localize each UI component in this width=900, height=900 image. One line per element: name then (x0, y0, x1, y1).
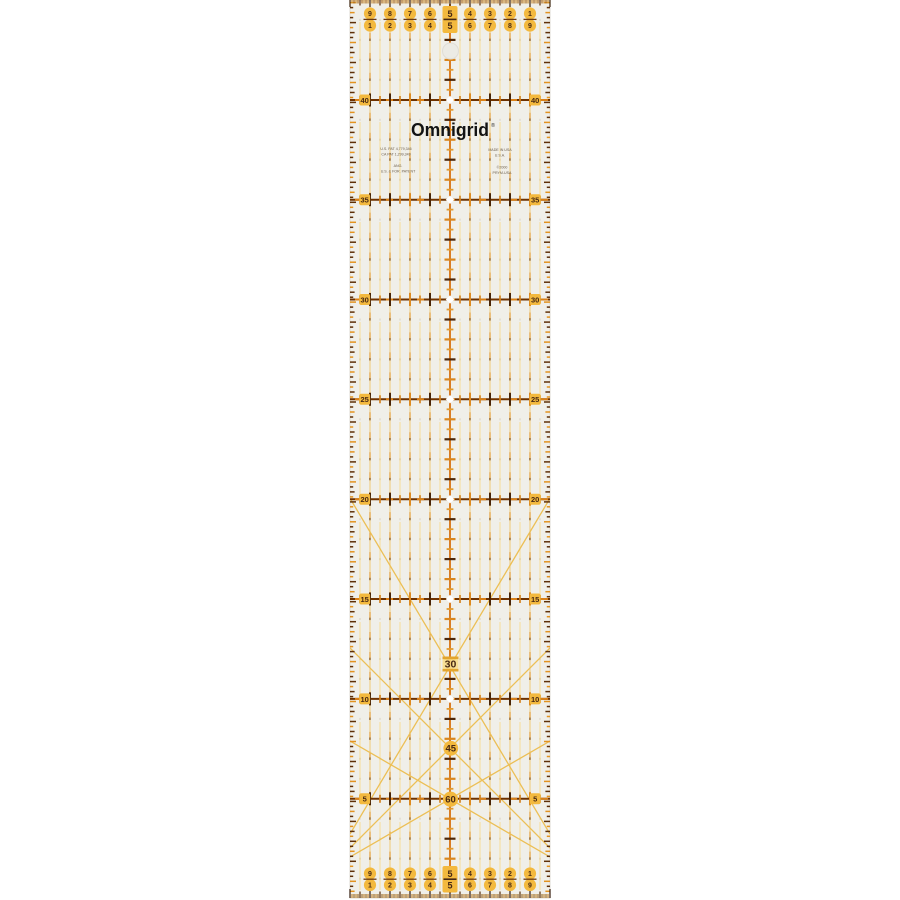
svg-text:7: 7 (488, 883, 492, 890)
svg-text:1: 1 (528, 871, 532, 878)
svg-text:15: 15 (531, 595, 539, 604)
svg-text:20: 20 (361, 495, 369, 504)
svg-text:1: 1 (368, 23, 372, 30)
svg-text:®: ® (491, 122, 495, 129)
svg-text:4: 4 (468, 11, 472, 18)
svg-text:2: 2 (388, 883, 392, 890)
svg-text:8: 8 (508, 883, 512, 890)
svg-text:6: 6 (468, 23, 472, 30)
svg-text:5: 5 (447, 21, 452, 31)
svg-text:2: 2 (508, 871, 512, 878)
svg-text:5: 5 (447, 869, 452, 879)
svg-text:4: 4 (428, 883, 432, 890)
svg-text:3: 3 (408, 883, 412, 890)
svg-text:U.S. PAT 4,779,346: U.S. PAT 4,779,346 (380, 147, 411, 151)
svg-text:3: 3 (488, 11, 492, 18)
svg-text:2: 2 (388, 23, 392, 30)
svg-text:7: 7 (408, 871, 412, 878)
svg-text:40: 40 (361, 96, 369, 105)
svg-text:8: 8 (508, 23, 512, 30)
svg-text:2: 2 (508, 11, 512, 18)
svg-text:60: 60 (445, 795, 456, 806)
svg-text:Omnigrid: Omnigrid (411, 120, 489, 140)
svg-text:35: 35 (531, 196, 539, 205)
svg-text:30: 30 (445, 658, 457, 670)
svg-text:5: 5 (533, 795, 537, 804)
svg-text:20: 20 (531, 495, 539, 504)
svg-text:5: 5 (363, 795, 367, 804)
svg-text:9: 9 (528, 23, 532, 30)
svg-text:6: 6 (428, 11, 432, 18)
svg-text:1: 1 (368, 883, 372, 890)
svg-text:8: 8 (388, 871, 392, 878)
svg-text:4: 4 (428, 23, 432, 30)
svg-text:30: 30 (531, 295, 539, 304)
svg-text:6: 6 (468, 883, 472, 890)
svg-text:5: 5 (447, 880, 452, 890)
svg-text:6: 6 (428, 871, 432, 878)
svg-text:3: 3 (488, 871, 492, 878)
svg-text:4: 4 (468, 871, 472, 878)
svg-text:10: 10 (361, 695, 369, 704)
svg-text:U.S.A.: U.S.A. (495, 154, 505, 158)
svg-text:CA PAT 1,299,349: CA PAT 1,299,349 (381, 153, 410, 157)
svg-text:5: 5 (447, 9, 452, 19)
svg-text:40: 40 (531, 96, 539, 105)
svg-text:1: 1 (528, 11, 532, 18)
svg-text:MADE IN USA: MADE IN USA (488, 148, 512, 152)
svg-text:7: 7 (408, 11, 412, 18)
svg-text:9: 9 (368, 871, 372, 878)
svg-text:PRYM-USA: PRYM-USA (493, 171, 513, 175)
svg-text:25: 25 (531, 395, 539, 404)
svg-text:10: 10 (531, 695, 539, 704)
svg-text:30: 30 (361, 295, 369, 304)
svg-text:15: 15 (361, 595, 369, 604)
svg-text:7: 7 (488, 23, 492, 30)
svg-text:©2000: ©2000 (497, 166, 508, 170)
svg-text:3: 3 (408, 23, 412, 30)
svg-text:35: 35 (361, 196, 369, 205)
svg-text:45: 45 (446, 744, 457, 755)
svg-text:9: 9 (528, 883, 532, 890)
svg-text:ANG.: ANG. (394, 164, 403, 168)
svg-text:9: 9 (368, 11, 372, 18)
svg-text:U.S. & FOR. PATENT: U.S. & FOR. PATENT (381, 170, 416, 174)
svg-text:25: 25 (361, 395, 369, 404)
svg-text:8: 8 (388, 11, 392, 18)
